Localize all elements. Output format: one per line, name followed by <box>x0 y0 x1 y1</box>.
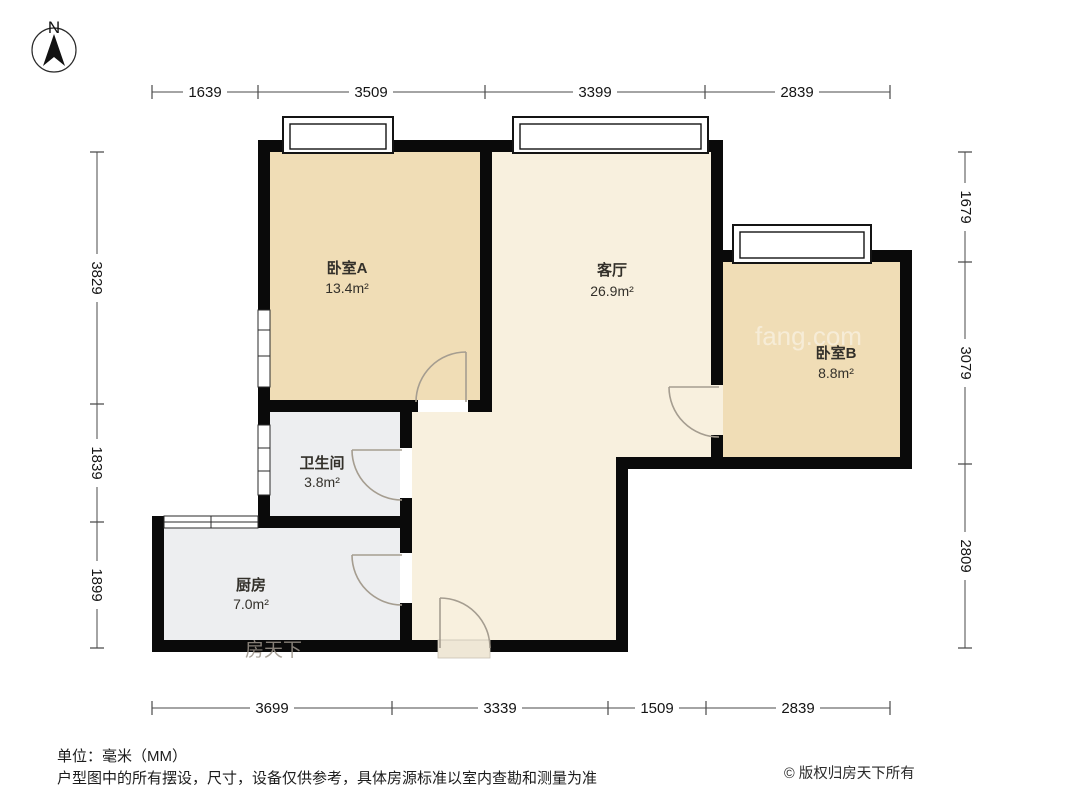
unit-note: 单位：毫米（MM） <box>57 747 187 765</box>
bottom-dim-value: 3339 <box>483 700 516 717</box>
bottom-dim-value: 1509 <box>640 700 673 717</box>
bedroom-a-area: 13.4m² <box>325 280 369 296</box>
left-dim-value: 3829 <box>88 261 105 294</box>
footer: 单位：毫米（MM） 户型图中的所有摆设，尺寸，设备仅供参考，具体房源标准以室内查… <box>57 747 915 787</box>
wall-bedroom-b-right <box>900 250 912 469</box>
right-dim-value: 1679 <box>957 190 974 223</box>
wall-bottom <box>152 640 628 652</box>
living-room-window <box>513 117 708 153</box>
bedroom-b-area: 8.8m² <box>818 365 854 381</box>
living-room-floor-mid <box>412 412 711 457</box>
wall-step-right <box>616 457 628 652</box>
bottom-dim-value: 3699 <box>255 700 288 717</box>
right-dim-value: 3079 <box>957 346 974 379</box>
bathroom-door-opening <box>400 448 412 498</box>
bedroom-a-floor <box>270 152 480 400</box>
bedroom-b-door-opening <box>711 385 723 435</box>
dimension-bottom: 3699 3339 1509 2839 <box>152 700 890 717</box>
bedroom-a-window <box>283 117 393 153</box>
left-dim-value: 1899 <box>88 568 105 601</box>
kitchen-door-opening <box>400 553 412 603</box>
dimension-left: 3829 1839 1899 <box>88 152 105 648</box>
dimension-right: 1679 3079 2809 <box>957 152 974 648</box>
wall-kitchen-left <box>152 516 164 652</box>
top-dim-value: 1639 <box>188 84 221 101</box>
living-room-label: 客厅 <box>596 261 627 279</box>
floorplan-canvas: fang.com 房天下 卧室A 13.4m² 客厅 26.9m² 卧室B 8.… <box>0 0 1066 800</box>
living-room-area: 26.9m² <box>590 283 634 299</box>
bedroom-a-window-frame <box>283 117 393 153</box>
living-room-floor-upper <box>492 152 711 412</box>
left-dim-value: 1839 <box>88 446 105 479</box>
right-dim-value: 2809 <box>957 539 974 572</box>
bedroom-b-floor <box>723 262 900 457</box>
kitchen-floor <box>164 528 400 640</box>
entry-door-threshold <box>438 640 490 658</box>
dimension-top: 1639 3509 3399 2839 <box>152 84 890 101</box>
bathroom-label: 卫生间 <box>299 454 344 472</box>
watermark-brand: 房天下 <box>245 639 302 661</box>
wall-bedroom-b-bottom <box>616 457 912 469</box>
bedroom-a-door-opening <box>418 400 468 412</box>
compass-arrow-icon <box>43 34 65 66</box>
top-dim-value: 3509 <box>354 84 387 101</box>
bedroom-a-side-window <box>258 310 270 387</box>
bedroom-b-window-frame <box>733 225 871 263</box>
wall-bathroom-right <box>400 412 412 640</box>
bedroom-a-label: 卧室A <box>327 259 368 277</box>
bathroom-area: 3.8m² <box>304 474 340 490</box>
bedroom-b-window <box>733 225 871 263</box>
kitchen-window <box>164 516 258 528</box>
living-room-floor-lower <box>412 457 616 640</box>
compass: N <box>32 18 76 72</box>
disclaimer: 户型图中的所有摆设，尺寸，设备仅供参考，具体房源标准以室内查勘和测量为准 <box>57 770 597 787</box>
bedroom-a-side-window-frame <box>258 310 270 387</box>
bathroom-side-window <box>258 425 270 495</box>
bottom-dim-value: 2839 <box>781 700 814 717</box>
kitchen-area: 7.0m² <box>233 596 269 612</box>
bedroom-b-label: 卧室B <box>816 344 857 362</box>
top-dim-value: 3399 <box>578 84 611 101</box>
wall-bedroom-a-living-divider <box>480 140 492 412</box>
floorplan-page: fang.com 房天下 卧室A 13.4m² 客厅 26.9m² 卧室B 8.… <box>0 0 1066 800</box>
top-dim-value: 2839 <box>780 84 813 101</box>
copyright: © 版权归房天下所有 <box>784 765 915 782</box>
living-room-window-frame <box>513 117 708 153</box>
bathroom-side-window-frame <box>258 425 270 495</box>
kitchen-label: 厨房 <box>236 576 266 594</box>
